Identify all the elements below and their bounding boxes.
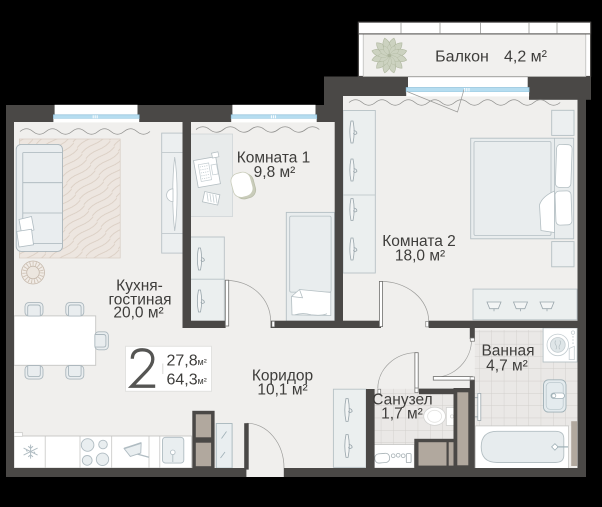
svg-text:м²: м² (198, 376, 207, 386)
svg-text:1,7 м²: 1,7 м² (381, 405, 423, 422)
svg-text:64,3: 64,3 (167, 372, 198, 389)
svg-text:м²: м² (198, 357, 207, 367)
svg-text:27,8: 27,8 (167, 353, 198, 370)
svg-text:4,2 м²: 4,2 м² (504, 49, 548, 66)
svg-text:10,1 м²: 10,1 м² (257, 382, 307, 399)
svg-text:20,0 м²: 20,0 м² (113, 305, 163, 322)
svg-text:Балкон: Балкон (435, 49, 489, 66)
svg-text:9,8 м²: 9,8 м² (254, 164, 296, 181)
svg-text:18,0 м²: 18,0 м² (395, 247, 445, 264)
svg-text:4,7 м²: 4,7 м² (486, 358, 528, 375)
